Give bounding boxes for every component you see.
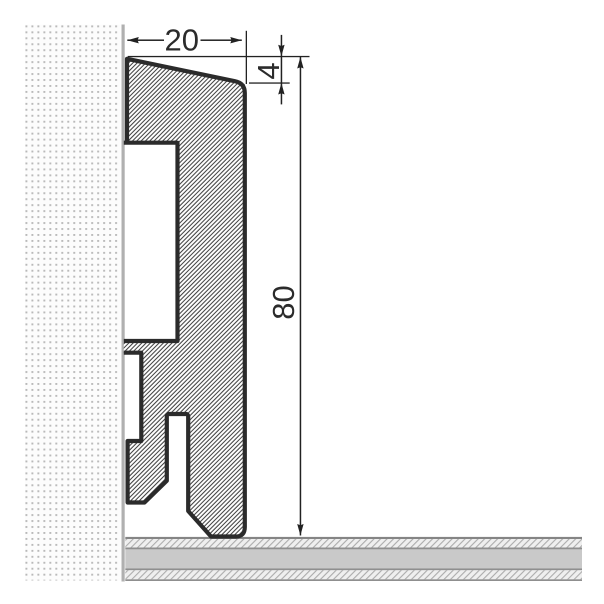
svg-text:4: 4	[251, 62, 286, 79]
svg-text:20: 20	[165, 23, 199, 58]
svg-text:80: 80	[266, 285, 301, 319]
